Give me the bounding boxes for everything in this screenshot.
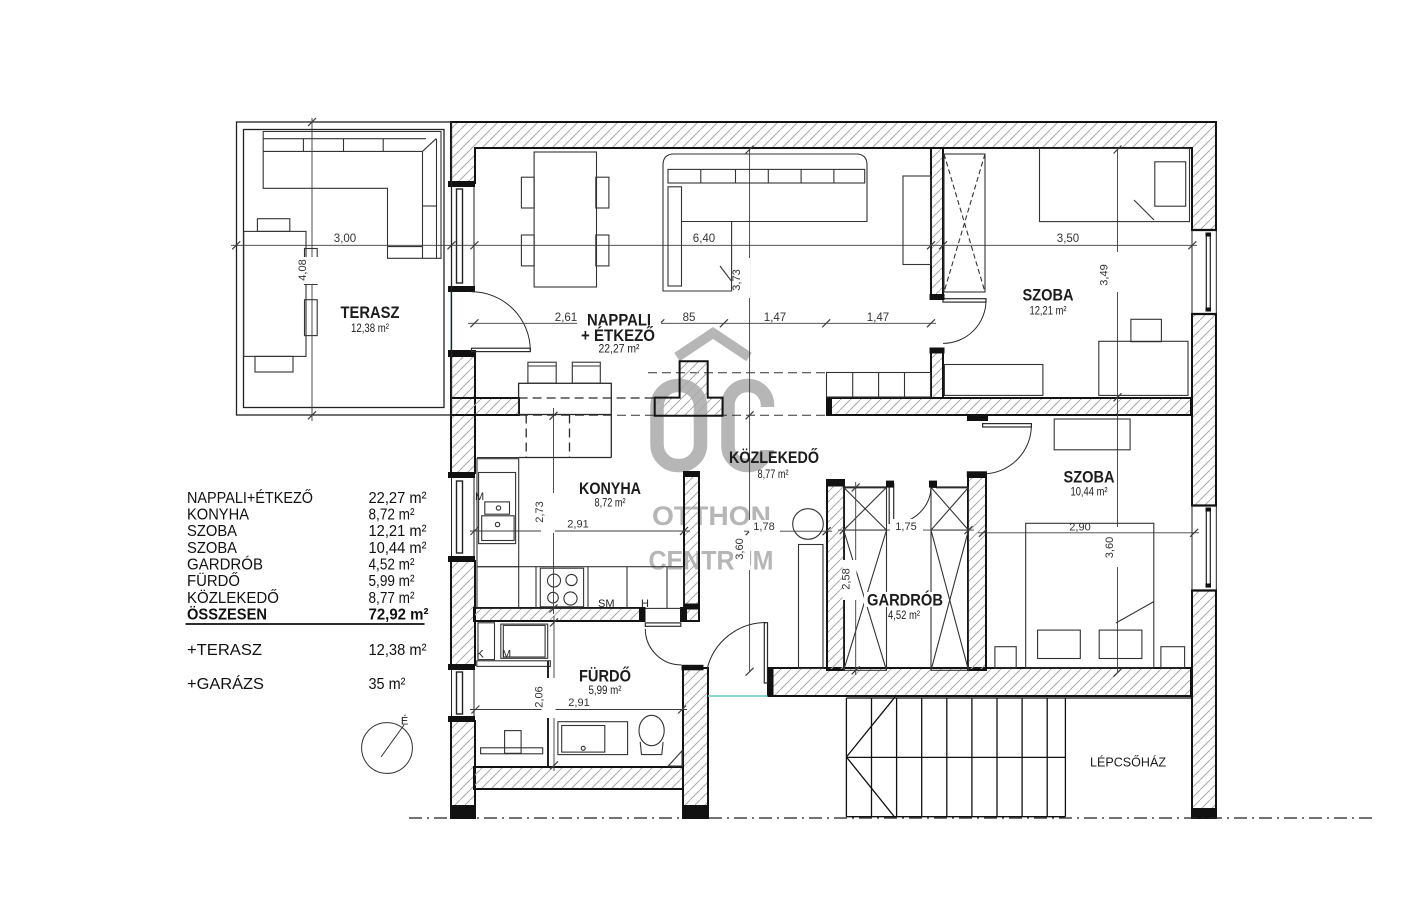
- svg-text:8,72 m²: 8,72 m²: [595, 496, 626, 510]
- svg-text:2,61: 2,61: [555, 312, 577, 324]
- svg-text:1,47: 1,47: [867, 312, 889, 324]
- svg-text:ÖSSZESEN: ÖSSZESEN: [187, 605, 267, 624]
- svg-text:SM: SM: [598, 598, 615, 610]
- svg-text:+GARÁZS: +GARÁZS: [187, 674, 264, 693]
- svg-text:4,52 m²: 4,52 m²: [369, 557, 415, 574]
- svg-text:2,91: 2,91: [567, 519, 588, 531]
- svg-text:12,21 m²: 12,21 m²: [1030, 304, 1067, 318]
- svg-text:M: M: [475, 491, 484, 503]
- svg-text:1,78: 1,78: [753, 521, 774, 533]
- svg-text:+TERASZ: +TERASZ: [187, 642, 262, 659]
- svg-text:22,27 m²: 22,27 m²: [599, 342, 640, 356]
- svg-text:6,40: 6,40: [693, 233, 715, 245]
- svg-text:TERASZ: TERASZ: [341, 304, 400, 322]
- svg-text:KÖZLEKEDŐ: KÖZLEKEDŐ: [729, 448, 819, 467]
- svg-text:3,73: 3,73: [731, 269, 743, 290]
- svg-text:4,08: 4,08: [297, 259, 309, 280]
- svg-text:12,21 m²: 12,21 m²: [369, 523, 427, 540]
- svg-text:22,27 m²: 22,27 m²: [369, 490, 427, 507]
- svg-text:12,38 m²: 12,38 m²: [369, 642, 427, 659]
- svg-text:NAPPALI+ÉTKEZŐ: NAPPALI+ÉTKEZŐ: [187, 488, 313, 507]
- svg-text:É: É: [401, 715, 408, 728]
- svg-text:M: M: [502, 649, 511, 661]
- svg-text:8,77 m²: 8,77 m²: [369, 590, 415, 607]
- svg-text:72,92 m²: 72,92 m²: [369, 607, 429, 624]
- svg-text:5,99 m²: 5,99 m²: [589, 683, 622, 697]
- svg-text:85: 85: [683, 312, 696, 324]
- svg-text:2,06: 2,06: [534, 686, 546, 707]
- svg-text:10,44 m²: 10,44 m²: [1071, 485, 1108, 499]
- svg-text:3,60: 3,60: [734, 538, 746, 559]
- svg-text:3,60: 3,60: [1104, 537, 1116, 558]
- svg-text:5,99 m²: 5,99 m²: [369, 573, 415, 590]
- svg-text:3,00: 3,00: [334, 233, 356, 245]
- svg-text:35 m²: 35 m²: [369, 676, 406, 693]
- svg-text:LÉPCSŐHÁZ: LÉPCSŐHÁZ: [1090, 755, 1166, 770]
- svg-text:2,58: 2,58: [841, 568, 853, 589]
- svg-text:2,91: 2,91: [568, 697, 589, 709]
- svg-text:8,72 m²: 8,72 m²: [369, 507, 415, 524]
- svg-text:3,49: 3,49: [1099, 264, 1111, 285]
- svg-text:2,73: 2,73: [534, 501, 546, 522]
- svg-text:4,52 m²: 4,52 m²: [888, 608, 920, 622]
- svg-text:SZOBA: SZOBA: [187, 540, 237, 557]
- svg-text:GARDRÓB: GARDRÓB: [867, 591, 943, 610]
- svg-text:2,90: 2,90: [1069, 522, 1090, 534]
- svg-text:KÖZLEKEDŐ: KÖZLEKEDŐ: [187, 588, 279, 607]
- svg-text:3,50: 3,50: [1057, 233, 1079, 245]
- svg-text:FÜRDŐ: FÜRDŐ: [187, 571, 240, 590]
- svg-text:10,44 m²: 10,44 m²: [369, 540, 427, 557]
- svg-text:GARDRÓB: GARDRÓB: [187, 555, 263, 574]
- svg-text:1,47: 1,47: [764, 312, 786, 324]
- svg-text:H: H: [641, 598, 649, 610]
- svg-text:SZOBA: SZOBA: [187, 523, 237, 540]
- svg-text:12,38 m²: 12,38 m²: [351, 321, 389, 335]
- svg-text:8,77 m²: 8,77 m²: [758, 467, 789, 481]
- svg-text:1,75: 1,75: [895, 521, 916, 533]
- svg-text:K: K: [477, 649, 485, 661]
- svg-text:KONYHA: KONYHA: [187, 507, 249, 524]
- svg-text:SZOBA: SZOBA: [1023, 287, 1074, 305]
